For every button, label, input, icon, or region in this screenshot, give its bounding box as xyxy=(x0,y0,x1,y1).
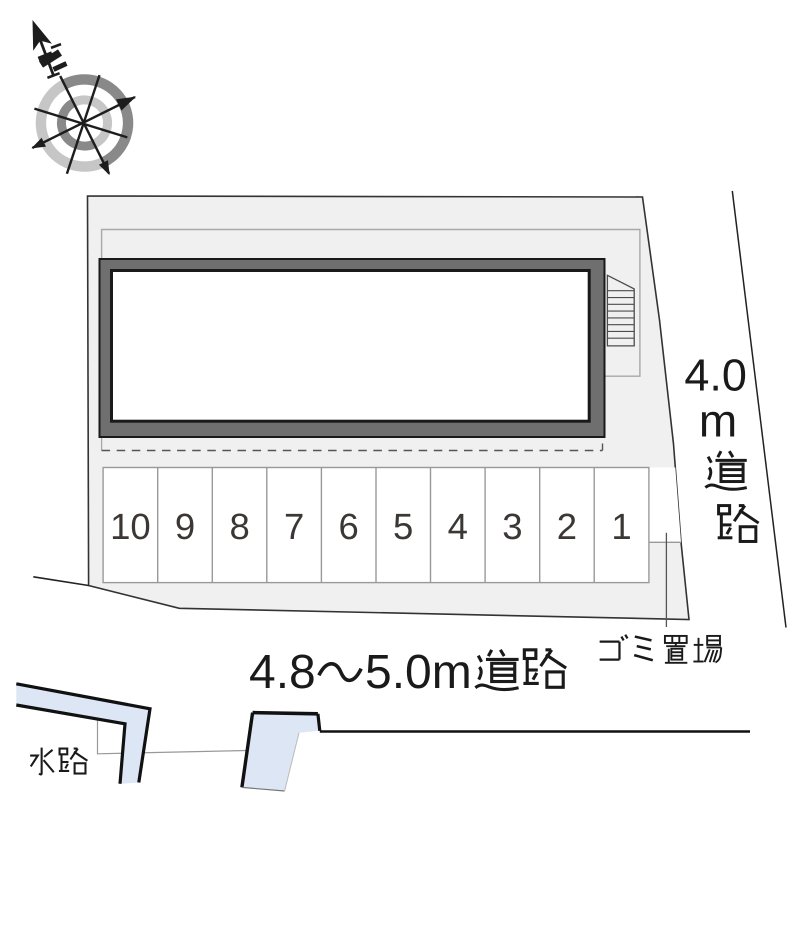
svg-text:4.8: 4.8 xyxy=(249,646,316,699)
svg-text:9: 9 xyxy=(175,506,195,547)
svg-text:8: 8 xyxy=(229,506,249,547)
svg-text:1: 1 xyxy=(611,506,631,547)
svg-text:5.0m: 5.0m xyxy=(365,646,472,699)
svg-text:3: 3 xyxy=(502,506,522,547)
svg-text:7: 7 xyxy=(284,506,304,547)
svg-text:6: 6 xyxy=(339,506,359,547)
svg-text:m: m xyxy=(699,394,737,446)
svg-text:4.0: 4.0 xyxy=(684,349,747,400)
svg-text:10: 10 xyxy=(110,506,151,547)
svg-text:5: 5 xyxy=(393,506,413,547)
svg-text:2: 2 xyxy=(557,506,577,547)
svg-text:4: 4 xyxy=(448,506,468,547)
